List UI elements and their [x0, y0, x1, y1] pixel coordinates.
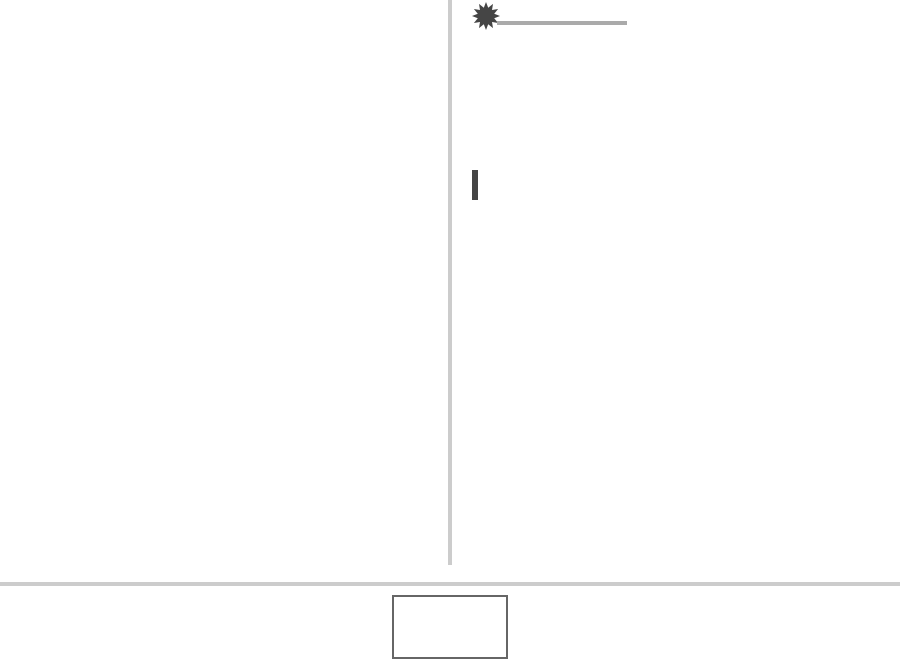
heading-rule: [497, 21, 627, 25]
starburst-icon: [472, 2, 500, 30]
page-canvas: [0, 0, 900, 641]
column-divider: [448, 0, 452, 565]
text-caret-marker: [472, 170, 478, 200]
bottom-center-box[interactable]: [392, 595, 508, 659]
footer-divider: [0, 582, 900, 586]
